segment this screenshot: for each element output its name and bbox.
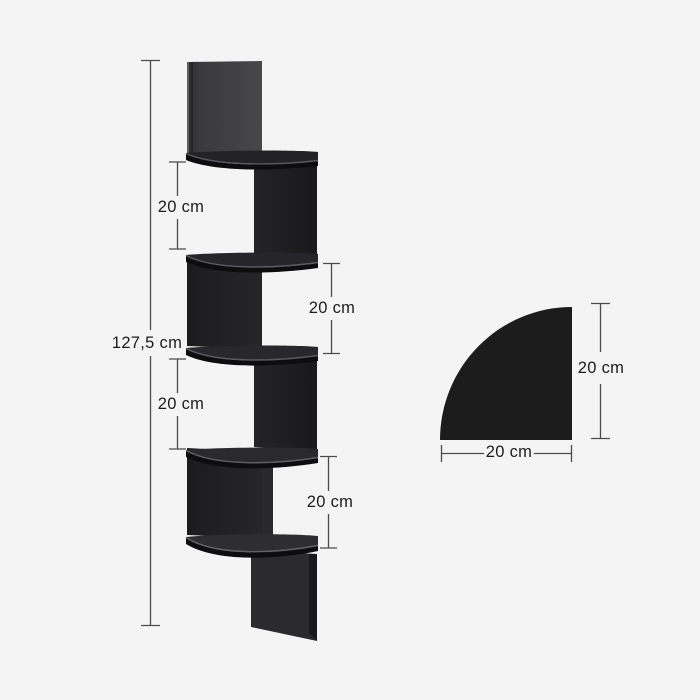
shelf-gap-label-2: 20 cm [309,300,355,317]
shelf-gap-label-4: 20 cm [307,494,353,511]
shelf-width-label: 20 cm [486,444,532,461]
top-view-shelf-shape [440,307,572,440]
side-panel-1 [254,158,317,257]
shelf-gap-label-1: 20 cm [158,199,204,216]
shelf-depth-label: 20 cm [578,360,624,377]
product-dimension-diagram: 127,5 cm 20 cm 20 cm 20 cm 20 cm 20 cm 2… [0,0,700,700]
corner-shelf-diagram-svg [0,0,700,700]
shelf-board-5 [186,534,318,558]
total-height-label: 127,5 cm [112,335,182,352]
shelf-board-1 [186,151,318,170]
bottom-back-panel [251,550,317,641]
shelf-board-3 [186,346,318,366]
top-back-panel [187,61,262,155]
shelf-gap-label-3: 20 cm [158,396,204,413]
